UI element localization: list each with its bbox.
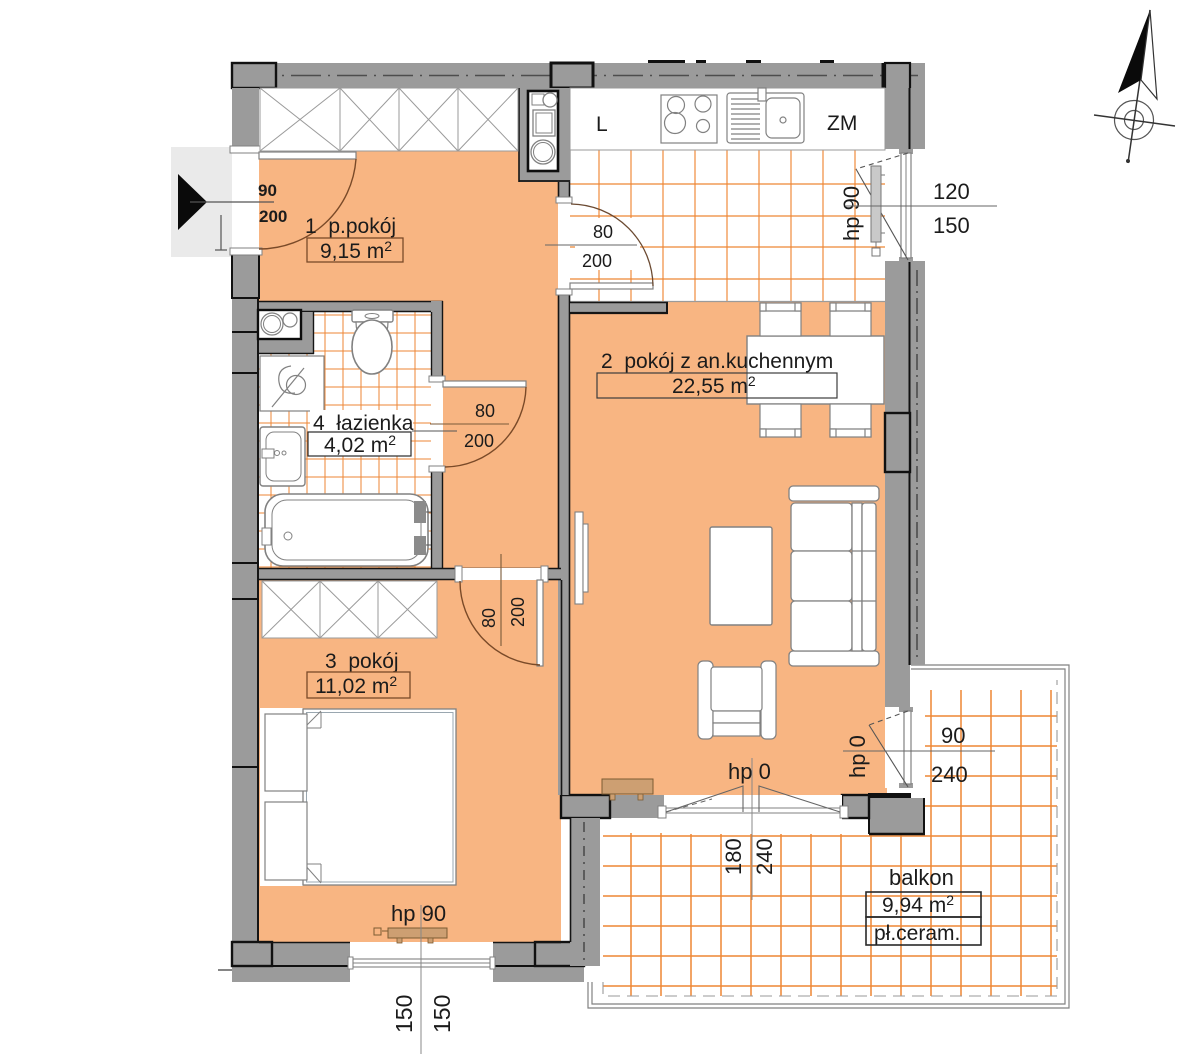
svg-text:80: 80 <box>593 222 613 242</box>
svg-text:4,02 m2: 4,02 m2 <box>324 432 396 457</box>
svg-text:80: 80 <box>475 401 495 421</box>
svg-text:90: 90 <box>941 723 965 748</box>
svg-text:3 pokój: 3 pokój <box>325 650 399 673</box>
svg-text:hp 0: hp 0 <box>728 759 771 784</box>
svg-text:pł.ceram.: pł.ceram. <box>874 922 960 945</box>
svg-text:hp 90: hp 90 <box>391 901 446 926</box>
svg-text:22,55 m2: 22,55 m2 <box>672 373 756 398</box>
svg-text:200: 200 <box>259 207 287 226</box>
svg-text:150: 150 <box>391 995 417 1033</box>
svg-text:hp 0: hp 0 <box>845 735 870 778</box>
svg-text:L: L <box>596 113 608 136</box>
svg-text:1 p.pokój: 1 p.pokój <box>305 215 396 238</box>
svg-text:150: 150 <box>429 995 455 1033</box>
svg-text:240: 240 <box>752 838 777 875</box>
svg-text:200: 200 <box>508 597 528 627</box>
svg-text:120: 120 <box>933 179 970 204</box>
svg-text:150: 150 <box>933 213 970 238</box>
svg-text:200: 200 <box>464 431 494 451</box>
svg-text:11,02 m2: 11,02 m2 <box>315 673 397 698</box>
svg-text:2 pokój z an.kuchennym: 2 pokój z an.kuchennym <box>601 350 833 373</box>
svg-text:240: 240 <box>931 762 968 787</box>
svg-text:90: 90 <box>258 181 277 200</box>
svg-text:9,15 m2: 9,15 m2 <box>320 238 392 263</box>
svg-text:80: 80 <box>479 608 499 628</box>
svg-text:ZM: ZM <box>827 112 857 135</box>
svg-text:hp 90: hp 90 <box>839 186 864 241</box>
svg-text:180: 180 <box>721 838 746 875</box>
svg-text:balkon: balkon <box>889 865 954 890</box>
svg-text:9,94 m2: 9,94 m2 <box>882 892 954 917</box>
svg-text:200: 200 <box>582 251 612 271</box>
